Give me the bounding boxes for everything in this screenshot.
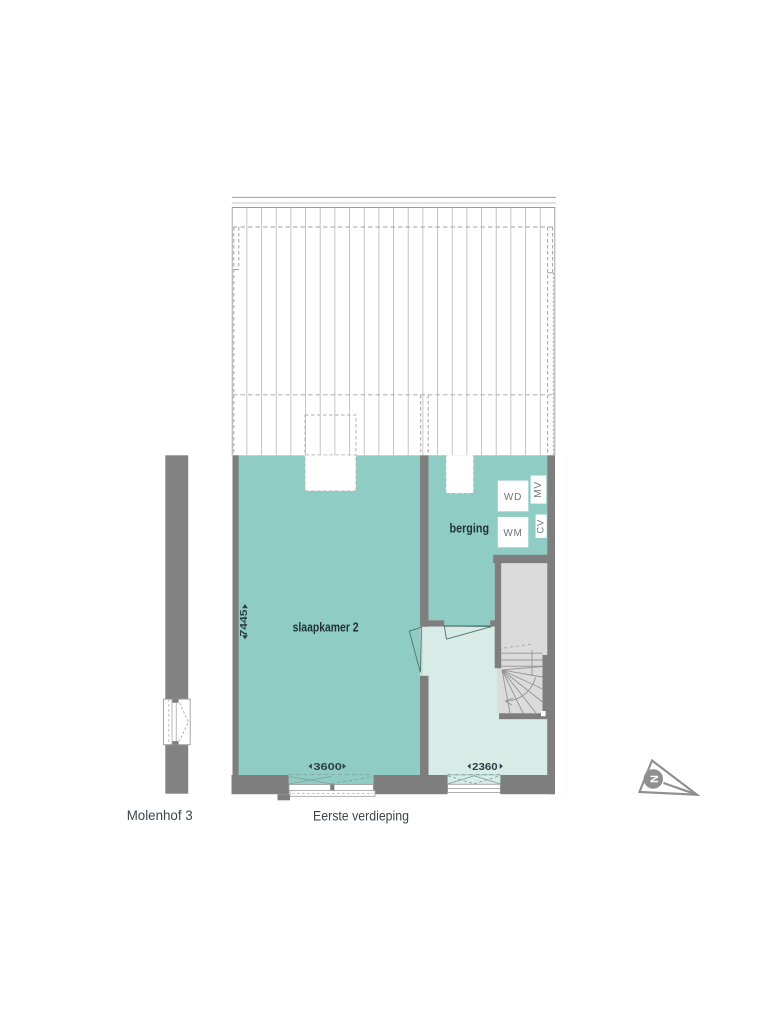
svg-text:Eerste verdieping: Eerste verdieping: [313, 809, 409, 824]
svg-text:berging: berging: [450, 520, 490, 535]
svg-text:WM: WM: [503, 528, 522, 539]
svg-text:7445: 7445: [238, 609, 250, 636]
svg-text:WD: WD: [504, 492, 522, 503]
svg-text:CV: CV: [536, 519, 547, 534]
svg-text:2360: 2360: [472, 761, 498, 773]
svg-text:slaapkamer 2: slaapkamer 2: [293, 620, 359, 635]
svg-text:Molenhof 3: Molenhof 3: [127, 808, 193, 823]
svg-text:3600: 3600: [313, 761, 342, 773]
svg-text:N: N: [647, 775, 659, 783]
svg-text:MV: MV: [533, 481, 544, 498]
